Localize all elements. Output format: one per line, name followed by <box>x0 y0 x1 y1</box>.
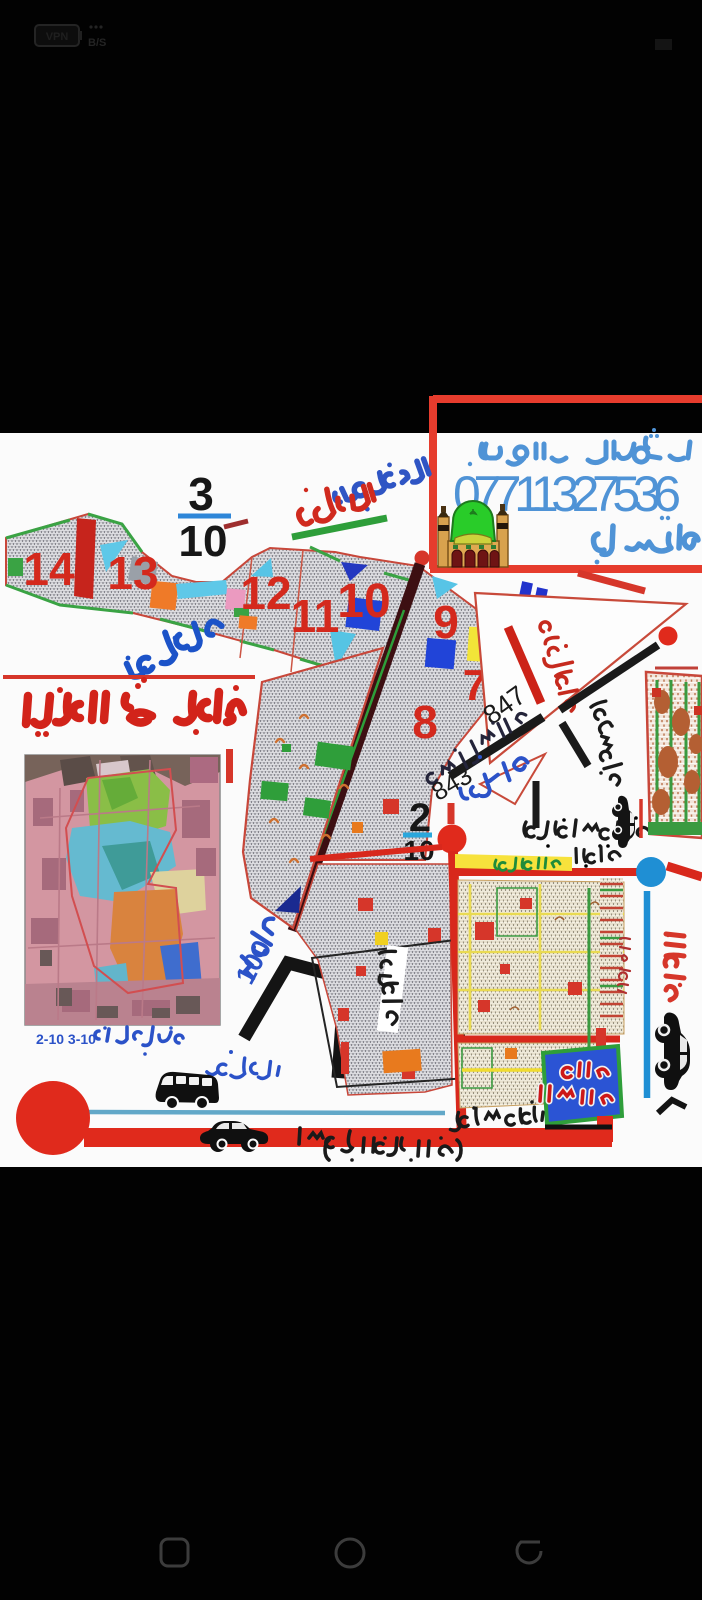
svg-text:B/S: B/S <box>88 37 106 49</box>
svg-text:10: 10 <box>179 517 228 566</box>
svg-text:9: 9 <box>433 596 459 648</box>
svg-text:3: 3 <box>188 468 214 520</box>
svg-text:13: 13 <box>107 547 158 599</box>
svg-text:VPN: VPN <box>46 31 69 43</box>
svg-text:12: 12 <box>240 567 291 619</box>
svg-text:8: 8 <box>412 696 438 748</box>
svg-text:11: 11 <box>291 590 340 642</box>
svg-text:10: 10 <box>337 575 390 628</box>
svg-text:2-10 3-10: 2-10 3-10 <box>36 1031 96 1047</box>
svg-text:14: 14 <box>23 543 75 595</box>
